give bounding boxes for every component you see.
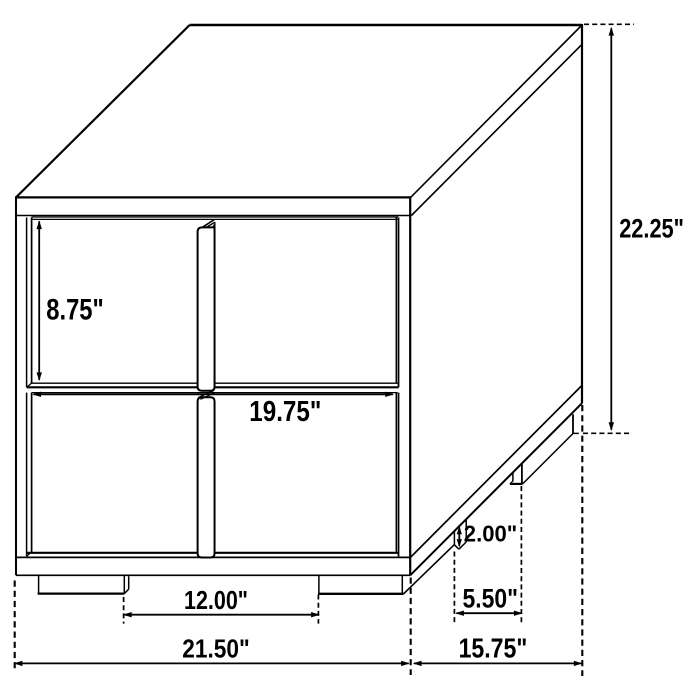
svg-text:8.75": 8.75" bbox=[46, 294, 103, 327]
svg-text:12.00": 12.00" bbox=[184, 585, 248, 615]
svg-text:15.75": 15.75" bbox=[459, 633, 528, 664]
svg-text:2.00": 2.00" bbox=[464, 521, 517, 547]
svg-text:21.50": 21.50" bbox=[182, 634, 249, 664]
svg-text:5.50": 5.50" bbox=[463, 584, 519, 614]
svg-text:19.75": 19.75" bbox=[249, 396, 321, 428]
svg-text:22.25": 22.25" bbox=[619, 213, 684, 243]
